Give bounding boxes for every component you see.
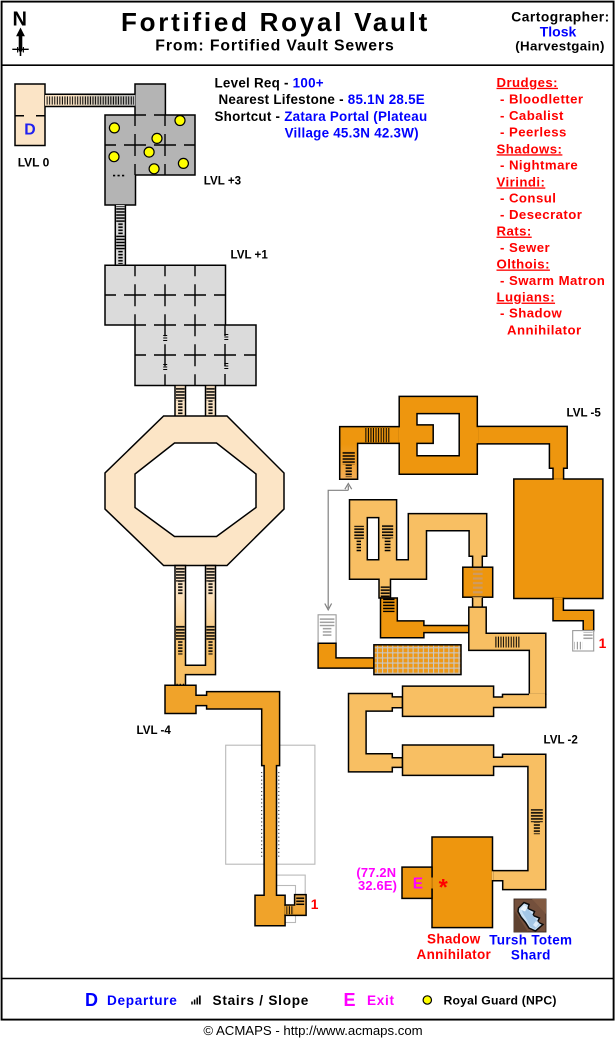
- svg-text:- Nightmare: - Nightmare: [500, 158, 578, 173]
- svg-text:- Swarm Matron: - Swarm Matron: [500, 273, 605, 288]
- svg-text:Tlosk: Tlosk: [540, 24, 577, 40]
- svg-text:Drudges:: Drudges:: [497, 75, 558, 90]
- svg-text:LVL -4: LVL -4: [137, 724, 172, 737]
- svg-text:(Harvestgain): (Harvestgain): [515, 39, 605, 54]
- svg-text:32.6E): 32.6E): [358, 878, 397, 893]
- svg-text:LVL -2: LVL -2: [544, 733, 578, 746]
- svg-text:© ACMAPS - http://www.acmaps.c: © ACMAPS - http://www.acmaps.com: [203, 1023, 422, 1038]
- svg-text:From: Fortified Vault Sewers: From: Fortified Vault Sewers: [155, 37, 394, 54]
- svg-text:1: 1: [311, 897, 319, 912]
- svg-text:1: 1: [599, 636, 607, 651]
- svg-text:Shadows:: Shadows:: [497, 141, 563, 156]
- svg-text:Olthois:: Olthois:: [497, 257, 550, 272]
- svg-text:LVL +1: LVL +1: [231, 248, 269, 261]
- svg-text:Nearest Lifestone - 85.1N 28.5: Nearest Lifestone - 85.1N 28.5E: [219, 92, 425, 107]
- svg-text:- Sewer: - Sewer: [500, 240, 550, 255]
- svg-text:Annihilator: Annihilator: [507, 322, 582, 337]
- svg-text:Royal Guard (NPC): Royal Guard (NPC): [444, 994, 557, 1008]
- svg-text:Stairs / Slope: Stairs / Slope: [213, 993, 310, 1008]
- svg-text:E: E: [413, 875, 423, 892]
- svg-text:N: N: [13, 9, 27, 31]
- svg-text:- Desecrator: - Desecrator: [500, 207, 582, 222]
- svg-text:LVL -5: LVL -5: [567, 406, 602, 419]
- svg-text:LVL 0: LVL 0: [18, 155, 50, 169]
- svg-text:LVL +3: LVL +3: [204, 175, 242, 188]
- svg-text:Tursh Totem: Tursh Totem: [489, 932, 572, 947]
- svg-text:- Cabalist: - Cabalist: [500, 108, 564, 123]
- svg-text:Village 45.3N 42.3W): Village 45.3N 42.3W): [285, 126, 419, 141]
- svg-text:Fortified Royal Vault: Fortified Royal Vault: [121, 7, 430, 37]
- svg-text:Lugians:: Lugians:: [497, 290, 556, 305]
- svg-text:Level Req - 100+: Level Req - 100+: [215, 76, 324, 91]
- svg-text:Virindi:: Virindi:: [497, 174, 546, 189]
- svg-text:Shadow: Shadow: [427, 931, 481, 946]
- svg-text:D: D: [85, 990, 98, 1010]
- svg-text:- Consul: - Consul: [500, 191, 556, 206]
- svg-text:- Shadow: - Shadow: [500, 306, 563, 321]
- svg-text:Shard: Shard: [511, 947, 551, 962]
- svg-text:- Bloodletter: - Bloodletter: [500, 91, 584, 106]
- svg-text:Departure: Departure: [107, 993, 178, 1008]
- svg-text:Rats:: Rats:: [497, 224, 532, 239]
- svg-text:Cartographer:: Cartographer:: [511, 10, 610, 25]
- svg-text:Exit: Exit: [367, 993, 395, 1008]
- svg-text:Annihilator: Annihilator: [417, 947, 492, 962]
- svg-text:E: E: [344, 990, 356, 1010]
- svg-text:D: D: [24, 122, 35, 139]
- svg-text:*: *: [439, 874, 449, 900]
- svg-text:- Peerless: - Peerless: [500, 125, 567, 140]
- svg-text:Shortcut - Zatara Portal (Plat: Shortcut - Zatara Portal (Plateau: [215, 109, 428, 124]
